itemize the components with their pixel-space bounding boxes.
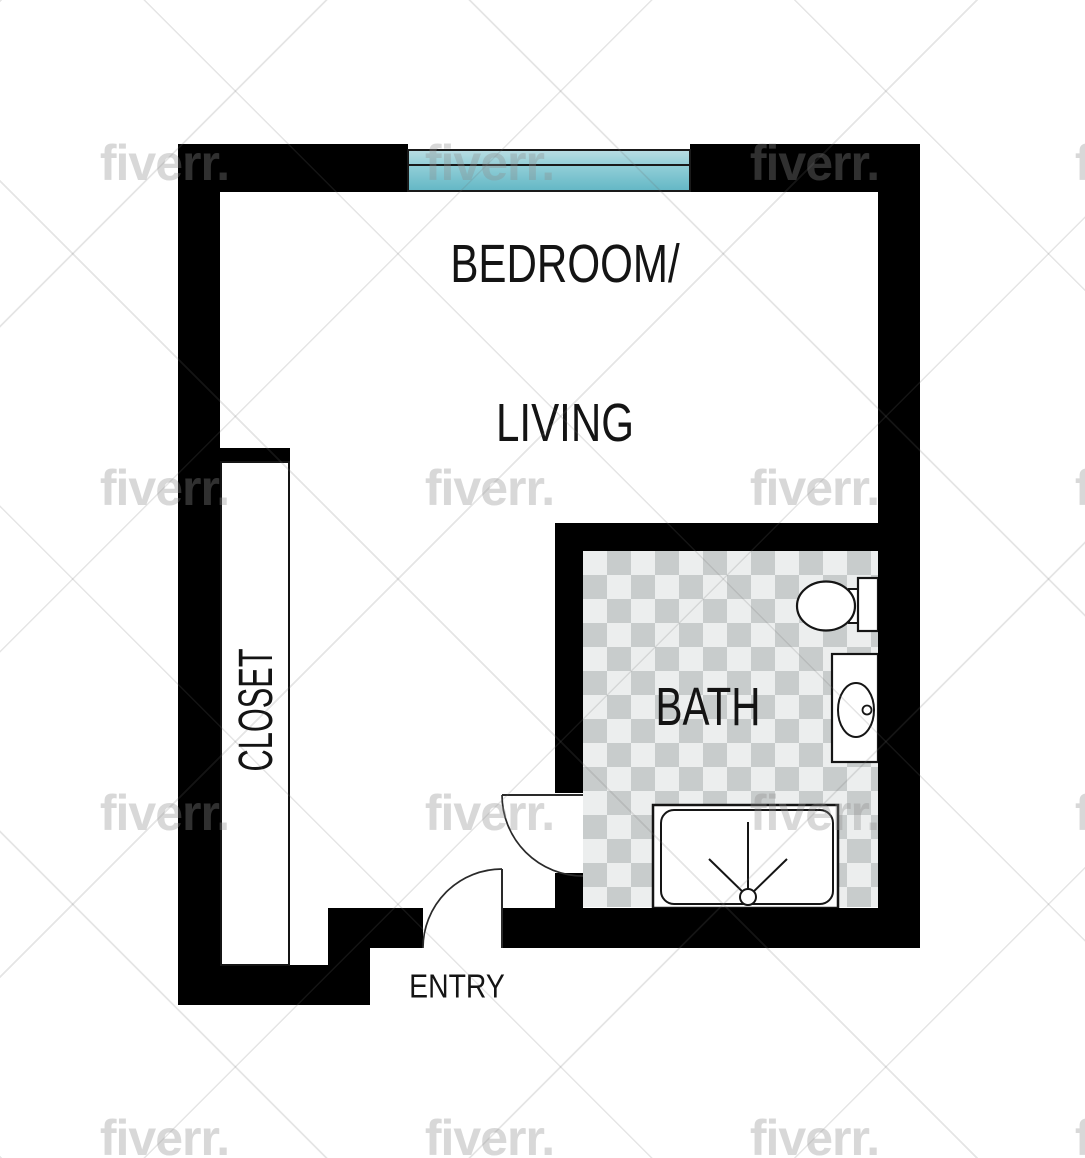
- wall-left: [178, 144, 220, 1005]
- bath-door-arc: [502, 795, 583, 876]
- bath-door: [502, 795, 583, 876]
- closet-box: [221, 462, 289, 965]
- sink: [832, 654, 878, 762]
- entry-door: [423, 869, 502, 948]
- entry-door-arc: [423, 869, 502, 948]
- window: [408, 150, 690, 191]
- toilet-tank: [858, 578, 878, 631]
- wall-bottom-left: [178, 965, 370, 1005]
- toilet: [797, 578, 878, 631]
- window-pane: [408, 150, 690, 191]
- wall-bath-top: [555, 523, 878, 551]
- wall-bath-left-upper: [555, 523, 583, 793]
- closet-top-bar: [220, 448, 290, 462]
- sink-drain: [863, 706, 872, 715]
- floor-plan-drawing: [0, 0, 1085, 1158]
- wall-bath-left-lower: [555, 873, 583, 948]
- shower-tray: [653, 805, 838, 908]
- floor-plan-canvas: BEDROOM/ LIVING BATH CLOSET ENTRY fiverr…: [0, 0, 1085, 1158]
- toilet-bowl: [797, 582, 855, 631]
- wall-right: [878, 144, 920, 948]
- shower-drain: [740, 889, 756, 905]
